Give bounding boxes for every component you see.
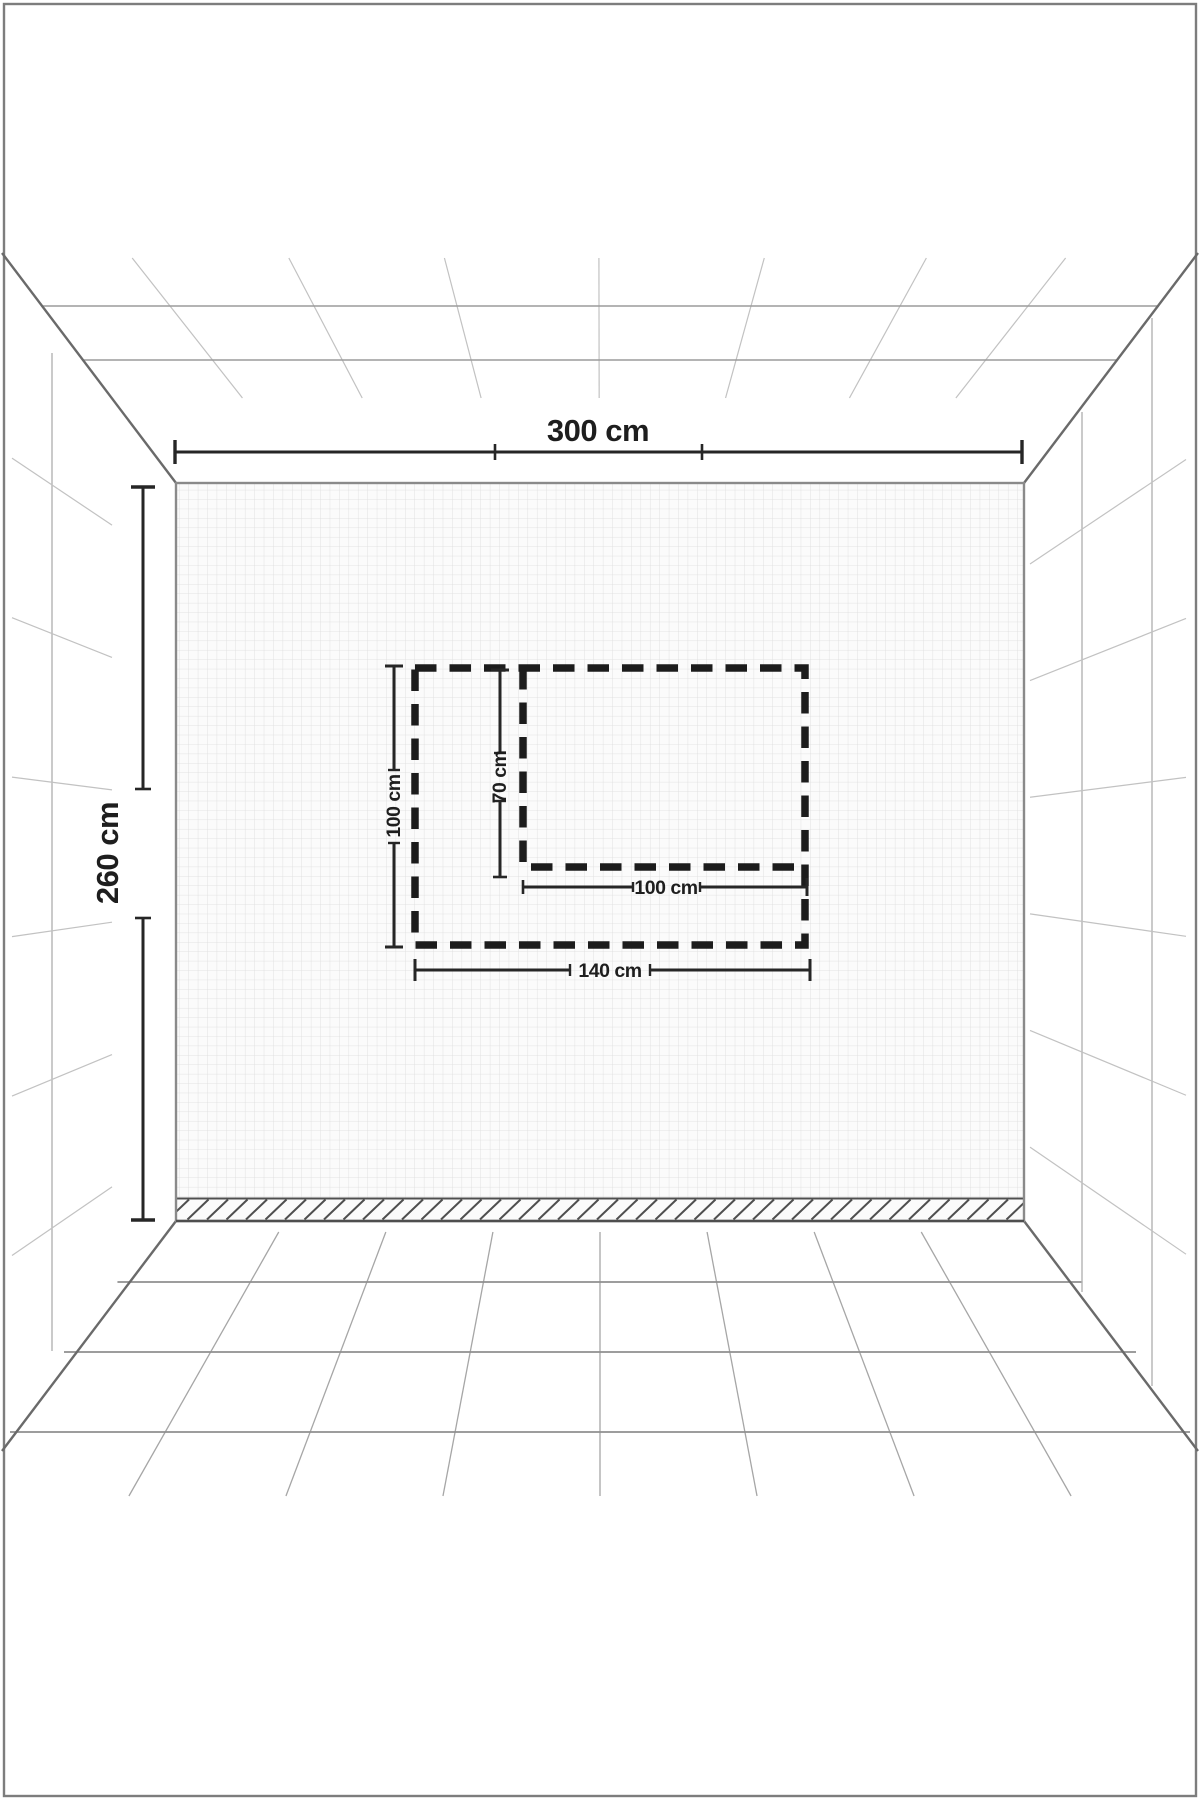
corner-edge-bottom-right (1024, 1221, 1198, 1451)
inner-area-height-label: 70 cm (489, 750, 511, 803)
left-wall-tile-line (12, 777, 112, 790)
floor-tile-line (443, 1232, 493, 1496)
perspective-room-diagram: 300 cm 260 cm 100 cm 70 cm 100 cm 140 cm (0, 0, 1200, 1800)
right-wall-tile-line (1030, 459, 1186, 563)
floor-tile-line (921, 1232, 1071, 1496)
left-wall-tile-line (12, 618, 112, 658)
left-wall-tile-line (12, 458, 112, 525)
corner-edge-bottom-left (2, 1221, 176, 1451)
right-wall-tile-line (1030, 618, 1186, 680)
room-diagram-canvas: 300 cm 260 cm 100 cm 70 cm 100 cm 140 cm (0, 0, 1200, 1800)
ceiling-tile-line (726, 258, 765, 398)
outer-area-height-label: 100 cm (383, 774, 405, 837)
back-wall-tile-grid (177, 484, 1023, 1198)
outer-area-width-label: 140 cm (578, 960, 641, 982)
corner-edge-top-right (1024, 253, 1198, 483)
floor-tile-line (707, 1232, 757, 1496)
ceiling-tile-line (444, 258, 481, 398)
ceiling-tile-line (956, 258, 1066, 398)
back-wall (168, 483, 1047, 1221)
floor-tile-line (814, 1232, 914, 1496)
inner-area-width-label: 100 cm (634, 877, 697, 899)
ceiling-tile-line (849, 258, 926, 398)
corner-edge-top-left (2, 253, 176, 483)
hatch-mark (1026, 1200, 1047, 1220)
right-wall-tile-line (1030, 914, 1186, 936)
right-wall-tile-line (1030, 1147, 1186, 1254)
left-wall-tile-line (12, 1055, 112, 1097)
dim-wall-height (131, 487, 155, 1220)
right-wall-tile-line (1030, 777, 1186, 797)
floor-tile-line (129, 1232, 279, 1496)
ceiling-tile-line (289, 258, 362, 398)
left-wall-tile-line (12, 922, 112, 936)
wall-width-label: 300 cm (547, 413, 649, 448)
floor-tile-line (286, 1232, 386, 1496)
right-wall-tile-line (1030, 1030, 1186, 1095)
left-wall-tile-line (12, 1187, 112, 1256)
ceiling-tile-line (132, 258, 242, 398)
wall-height-label: 260 cm (90, 802, 125, 904)
